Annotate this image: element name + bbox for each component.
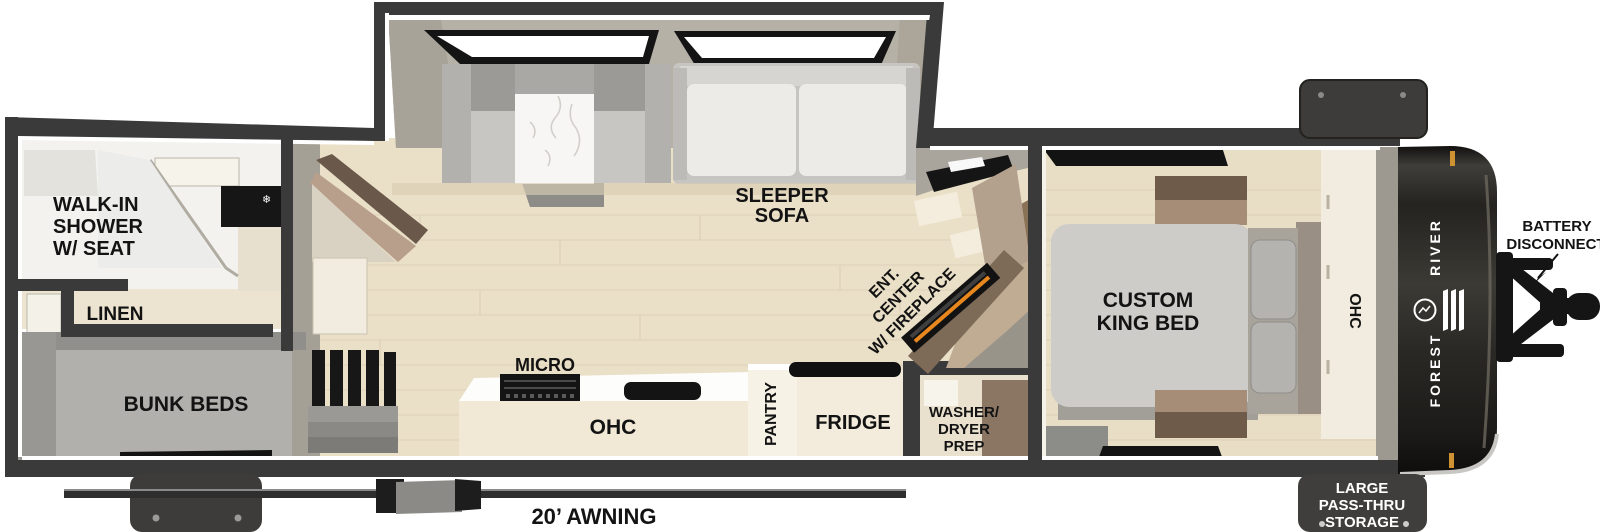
svg-text:MICRO: MICRO xyxy=(515,355,575,375)
svg-text:LINEN: LINEN xyxy=(87,304,144,325)
svg-text:PASS-THRU: PASS-THRU xyxy=(1319,497,1405,514)
svg-text:BUNK BEDS: BUNK BEDS xyxy=(124,393,249,416)
svg-text:BATTERY: BATTERY xyxy=(1522,218,1591,235)
svg-text:20’ AWNING: 20’ AWNING xyxy=(531,504,656,529)
svg-text:FOREST: FOREST xyxy=(1427,333,1443,408)
svg-text:DRYER: DRYER xyxy=(938,421,990,438)
svg-text:LARGE: LARGE xyxy=(1336,480,1389,497)
svg-text:CUSTOM: CUSTOM xyxy=(1103,289,1194,312)
svg-text:KING BED: KING BED xyxy=(1097,312,1200,335)
svg-text:FRIDGE: FRIDGE xyxy=(815,412,891,434)
svg-text:OHC: OHC xyxy=(590,416,637,439)
svg-text:❄: ❄ xyxy=(262,194,271,206)
svg-text:PANTRY: PANTRY xyxy=(763,382,780,446)
svg-text:PREP: PREP xyxy=(944,438,985,455)
svg-text:W/ SEAT: W/ SEAT xyxy=(53,238,135,260)
svg-text:OHC: OHC xyxy=(1346,293,1363,329)
svg-text:SHOWER: SHOWER xyxy=(53,216,144,238)
svg-text:SLEEPER: SLEEPER xyxy=(735,185,829,207)
svg-text:WALK-IN: WALK-IN xyxy=(53,194,139,216)
svg-text:SOFA: SOFA xyxy=(755,205,809,227)
svg-text:WASHER/: WASHER/ xyxy=(929,404,1000,421)
svg-text:RIVER: RIVER xyxy=(1427,218,1443,276)
svg-text:STORAGE: STORAGE xyxy=(1325,514,1399,531)
svg-text:DISCONNECT: DISCONNECT xyxy=(1506,236,1600,253)
